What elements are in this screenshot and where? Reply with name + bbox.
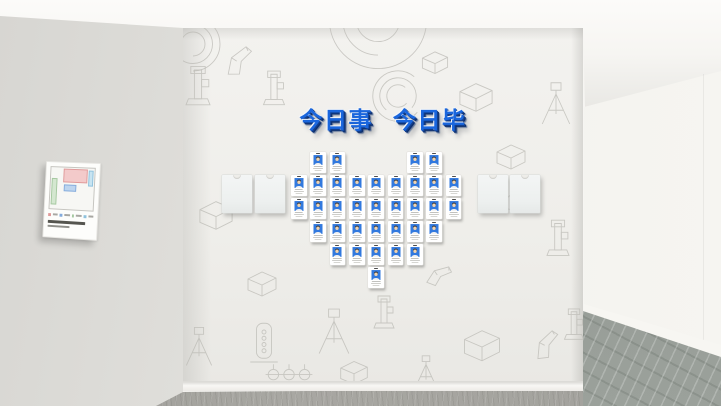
floor-plan-drawing	[48, 166, 95, 212]
arcs-sketch-icon	[329, 28, 426, 69]
evacuation-floor-plan-poster	[42, 161, 101, 241]
box-sketch-icon	[422, 52, 447, 74]
floor-plan-legend	[48, 212, 93, 219]
corridor-corner-line	[703, 74, 704, 352]
legend-label-text	[88, 216, 93, 218]
legend-color-chip	[48, 213, 51, 216]
scanner-sketch-icon	[531, 329, 563, 360]
box-sketch-icon	[497, 145, 525, 169]
cylinder-sketch-icon	[250, 323, 278, 362]
main-wall-baseboard	[183, 381, 583, 391]
column-sketch-icon	[374, 296, 394, 328]
box-sketch-icon	[248, 272, 276, 296]
legend-label-text	[64, 214, 69, 216]
tripod-sketch-icon	[186, 327, 211, 365]
rack-sketch-icon	[266, 364, 313, 380]
legend-color-chip	[83, 215, 86, 218]
exhibition-room: 今日事 今日毕	[0, 0, 721, 406]
legend-label-text	[76, 215, 81, 217]
legend-label-text	[53, 214, 58, 216]
blue-room	[63, 184, 76, 191]
legend-color-chip	[71, 214, 74, 217]
box-sketch-icon	[200, 202, 232, 230]
box-sketch-icon	[465, 331, 500, 361]
arcs-sketch-icon	[183, 28, 220, 71]
pink-area	[63, 168, 88, 183]
wall-slogan: 今日事 今日毕	[183, 101, 583, 135]
tripod-sketch-icon	[319, 309, 349, 354]
scanner-sketch-icon	[501, 186, 529, 213]
scanner-sketch-icon	[427, 264, 453, 288]
column-sketch-icon	[547, 220, 569, 255]
poster-subcaption-text	[48, 225, 70, 228]
column-sketch-icon	[186, 66, 210, 104]
main-wall	[183, 28, 583, 391]
equipment-sketch-wallpaper	[183, 28, 583, 391]
green-strip	[50, 178, 57, 205]
scanner-sketch-icon	[223, 46, 255, 76]
legend-color-chip	[60, 213, 63, 216]
column-sketch-icon	[264, 71, 285, 105]
cyan-strip	[88, 170, 94, 187]
column-sketch-icon	[565, 309, 584, 339]
